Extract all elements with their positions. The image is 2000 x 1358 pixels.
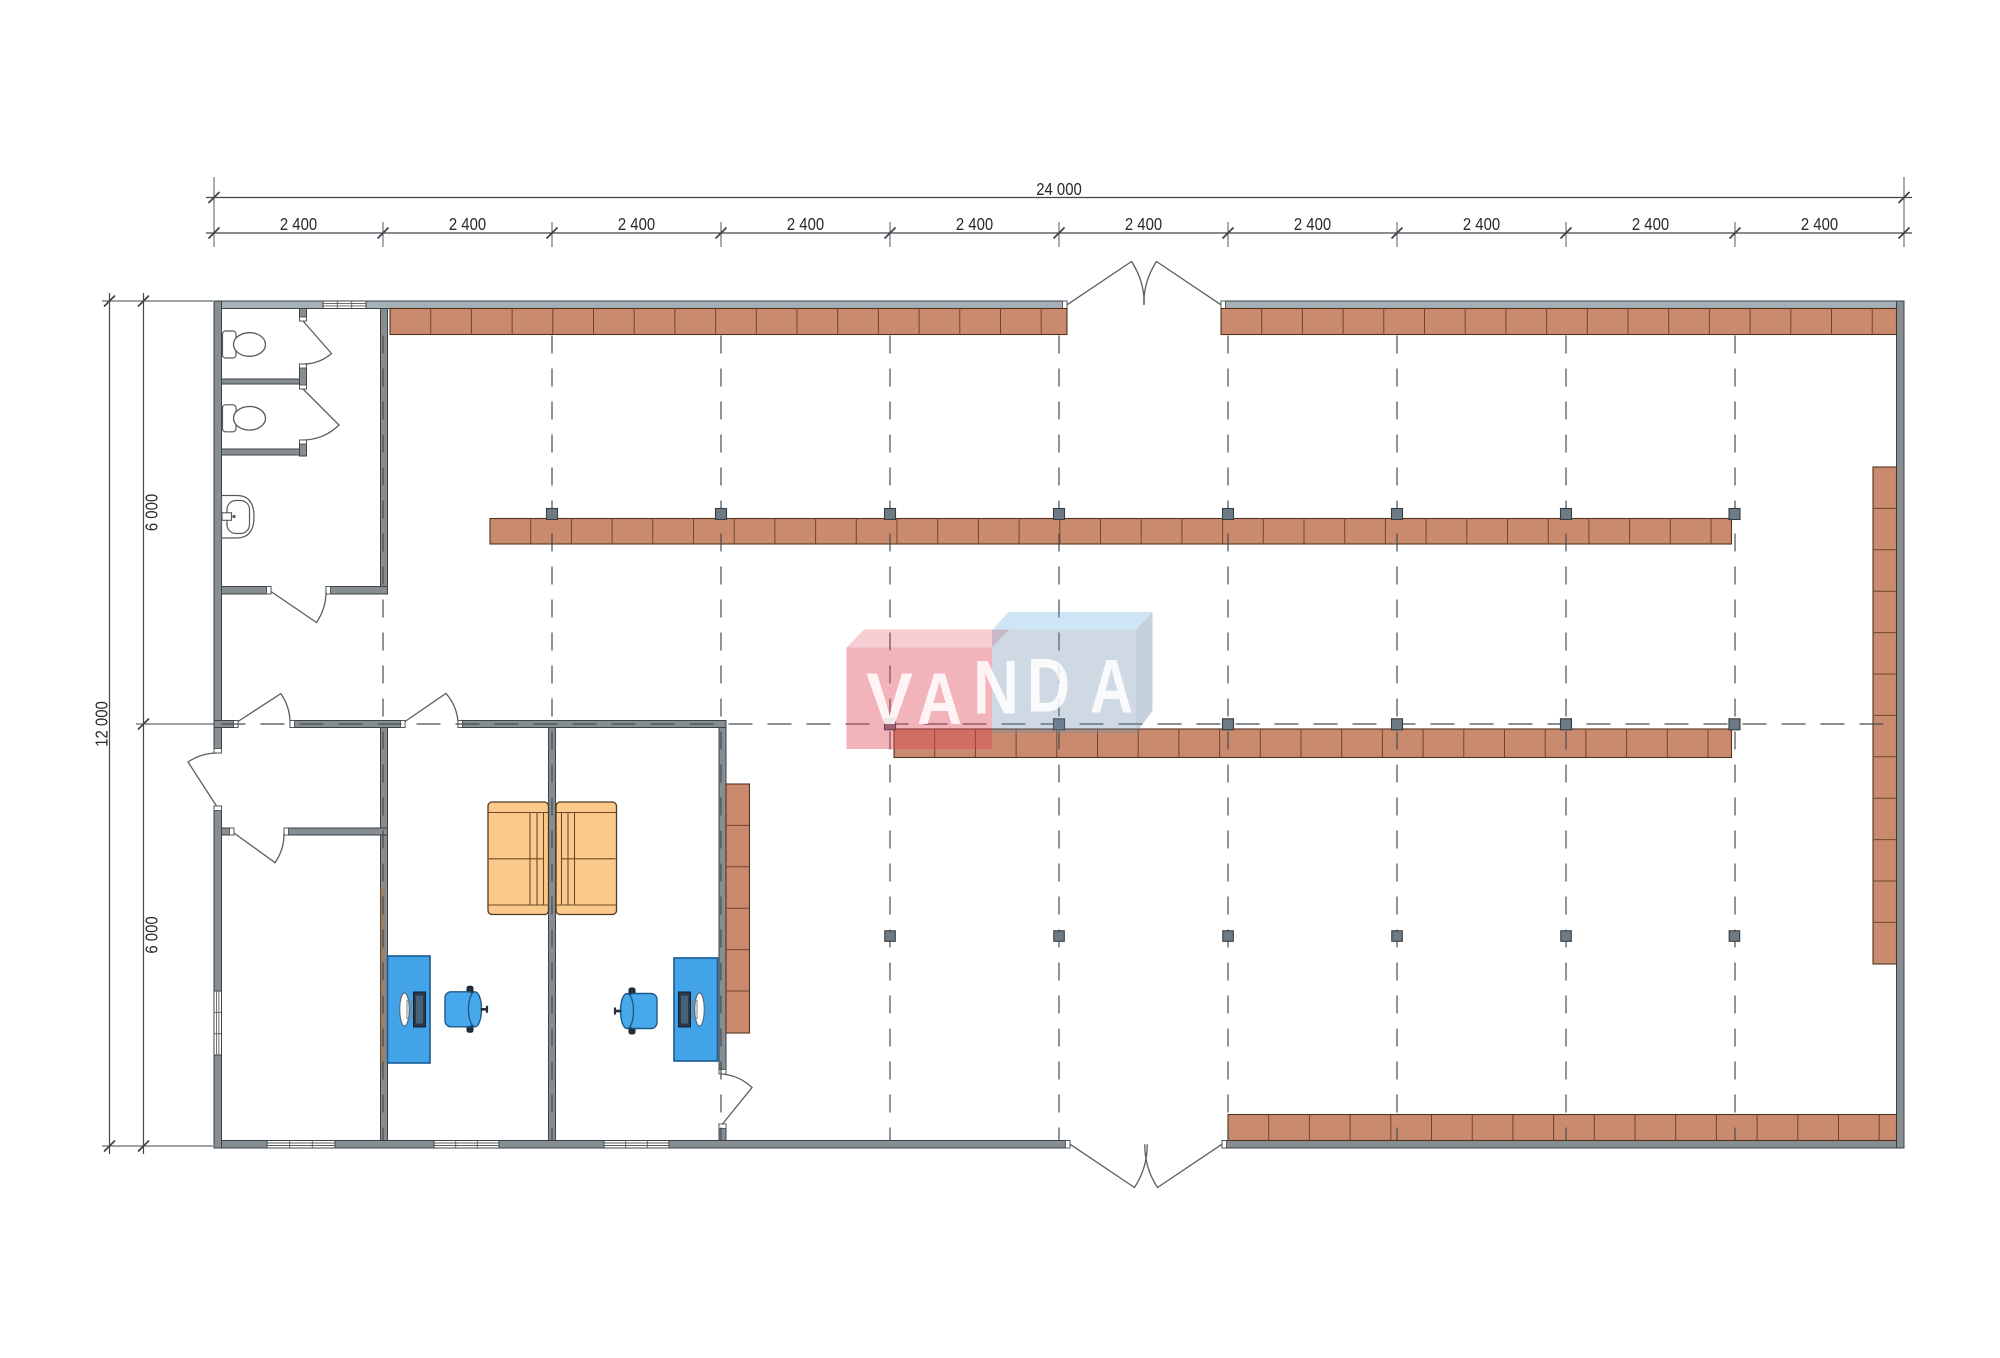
- svg-text:6 000: 6 000: [142, 494, 161, 531]
- svg-text:12 000: 12 000: [92, 701, 111, 746]
- svg-text:2 400: 2 400: [956, 215, 993, 234]
- svg-text:6 000: 6 000: [142, 916, 161, 953]
- svg-text:N: N: [973, 646, 1019, 731]
- svg-text:2 400: 2 400: [1463, 215, 1500, 234]
- svg-text:24 000: 24 000: [1036, 180, 1081, 199]
- svg-text:D: D: [1027, 644, 1070, 729]
- svg-text:2 400: 2 400: [787, 215, 824, 234]
- svg-text:2 400: 2 400: [280, 215, 317, 234]
- svg-text:2 400: 2 400: [1125, 215, 1162, 234]
- svg-text:A: A: [1090, 645, 1133, 730]
- svg-text:2 400: 2 400: [449, 215, 486, 234]
- svg-text:2 400: 2 400: [1294, 215, 1331, 234]
- svg-text:A: A: [917, 659, 962, 740]
- svg-text:2 400: 2 400: [1801, 215, 1838, 234]
- svg-text:2 400: 2 400: [1632, 215, 1669, 234]
- svg-text:V: V: [866, 659, 913, 740]
- svg-text:2 400: 2 400: [618, 215, 655, 234]
